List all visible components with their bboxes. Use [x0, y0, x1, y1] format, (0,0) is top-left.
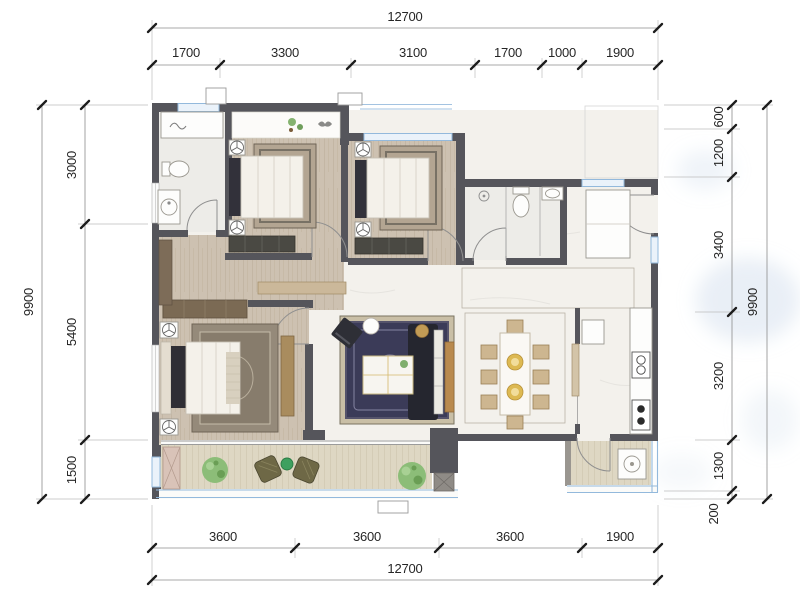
dim-bottom-seg1: 3600	[353, 529, 381, 544]
tv-console	[281, 336, 294, 416]
dim-right-seg1: 1200	[711, 139, 726, 167]
dim-right-seg3: 3200	[711, 362, 726, 390]
plant-icon	[398, 462, 426, 490]
bed-pillows	[171, 346, 186, 408]
bathroom1-window	[178, 104, 219, 112]
service-balcony	[618, 449, 646, 479]
entry-window	[582, 180, 624, 187]
dim-left: 9900 3000 5400 1500	[21, 101, 148, 503]
dim-bottom-seg2: 3600	[496, 529, 524, 544]
dim-bottom: 3600 3600 3600 1900 12700	[148, 505, 662, 586]
bathtub	[161, 112, 223, 138]
sofa-cushions	[434, 330, 443, 414]
ac-unit-box	[338, 93, 362, 105]
bedroom2-window	[364, 134, 452, 141]
dim-top-total: 12700	[387, 9, 422, 24]
dim-top-seg1: 3300	[271, 45, 299, 60]
hall-bench	[258, 282, 346, 294]
toilet-icon	[169, 161, 189, 177]
foyer-side-window	[651, 237, 658, 263]
dining-chair	[533, 370, 549, 384]
dim-top-seg5: 1900	[606, 45, 634, 60]
dim-top: 12700 1700 3300 3100 1700 1000 1900	[148, 9, 662, 100]
bed	[367, 158, 429, 218]
floor-plan-svg: 12700 1700 3300 3100 1700 1000 1900 3600…	[0, 0, 800, 600]
dining-chair	[481, 370, 497, 384]
hall-cabinet	[159, 240, 172, 305]
dim-bottom-total: 12700	[387, 561, 422, 576]
dining-chair	[533, 345, 549, 359]
sofa-console	[445, 342, 454, 412]
kitchen-sink-icon	[632, 400, 650, 430]
ac-unit-box	[206, 88, 226, 104]
dim-top-seg2: 3100	[399, 45, 427, 60]
toilet-tank	[513, 187, 529, 194]
dim-right-seg2: 3400	[711, 231, 726, 259]
dining-chair	[481, 345, 497, 359]
dim-left-seg1: 5400	[64, 318, 79, 346]
floor-lamp-icon	[363, 318, 379, 334]
living-room	[331, 316, 454, 424]
dim-right-seg0: 600	[711, 106, 726, 127]
dim-left-seg2: 1500	[64, 456, 79, 484]
balcony-left-window	[152, 457, 160, 487]
dim-right-total: 9900	[745, 288, 760, 316]
dim-top-seg3: 1700	[494, 45, 522, 60]
bed-headboard	[355, 160, 367, 218]
dim-left-seg0: 3000	[64, 151, 79, 179]
dining-chair	[481, 395, 497, 409]
dim-right-seg5: 200	[706, 503, 721, 524]
dim-bottom-seg3: 1900	[606, 529, 634, 544]
dim-top-seg4: 1000	[548, 45, 576, 60]
dining-chair	[507, 416, 523, 429]
plant-icon	[297, 124, 303, 130]
floor-plan-canvas: 12700 1700 3300 3100 1700 1000 1900 3600…	[0, 0, 800, 600]
balcony-table	[281, 458, 293, 470]
dim-top-seg0: 1700	[172, 45, 200, 60]
fridge	[582, 320, 604, 344]
ac-unit-box	[378, 501, 408, 513]
bed-headboard	[229, 158, 241, 216]
balcony-slider	[161, 440, 430, 445]
dining-chair	[533, 395, 549, 409]
table-plant-icon	[400, 360, 408, 368]
dim-left-total: 9900	[21, 288, 36, 316]
service-balcony-edge	[565, 441, 571, 486]
dim-right-seg4: 1300	[711, 452, 726, 480]
bay-ledge-rail	[360, 105, 452, 110]
bed	[241, 156, 303, 218]
dim-bottom-seg0: 3600	[209, 529, 237, 544]
plant-icon	[288, 118, 296, 126]
dining-table	[500, 333, 530, 415]
bed-headboard	[161, 342, 171, 414]
toilet-icon	[513, 195, 529, 217]
bed-blanket	[226, 352, 240, 404]
dining-chair	[507, 320, 523, 333]
drum-stool	[416, 325, 429, 338]
